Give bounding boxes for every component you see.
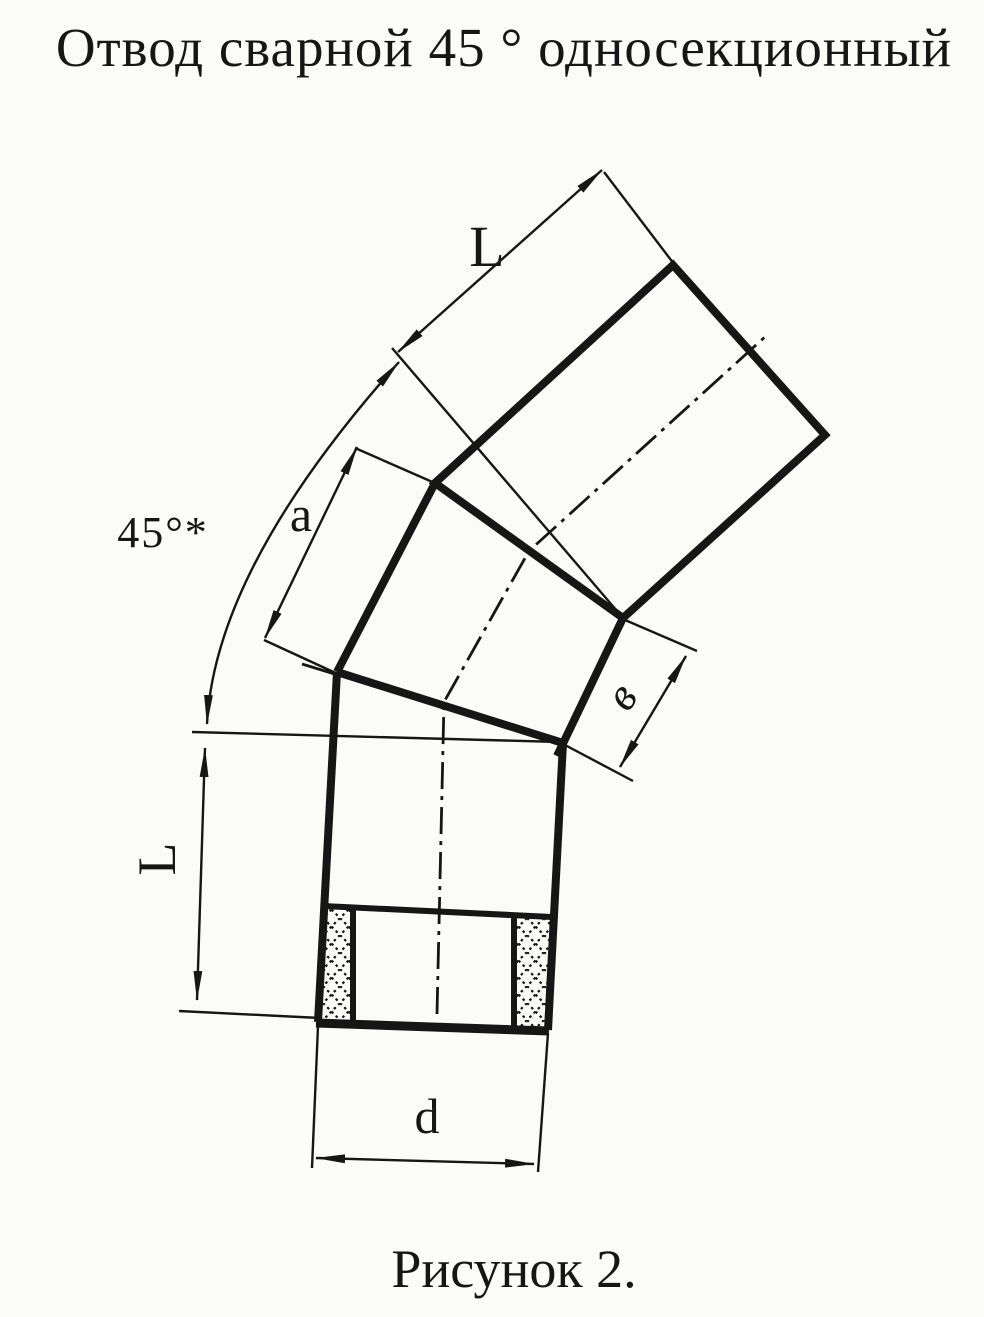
ext-line-L-left-top xyxy=(192,732,560,742)
ext-line-d-left xyxy=(312,1026,318,1168)
ext-line-L-top-near xyxy=(392,348,623,618)
bottom-pipe-right-edge xyxy=(548,743,563,1030)
left-wall-hatch xyxy=(319,907,353,1021)
label-d: d xyxy=(415,1088,440,1144)
elbow-diagram: L a 45°* в L d xyxy=(0,0,984,1317)
label-angle-45: 45°* xyxy=(117,508,209,557)
ext-line-L-top-far xyxy=(604,172,674,264)
socket-detail xyxy=(319,906,552,1029)
label-a: a xyxy=(290,486,312,542)
dimensions xyxy=(179,170,697,1172)
ext-line-v-top xyxy=(625,620,697,651)
pipe-outline xyxy=(302,265,825,1031)
ext-line-a-bottom xyxy=(264,640,340,675)
dim-line-a xyxy=(265,447,357,638)
ext-line-d-right xyxy=(538,1033,548,1172)
scanned-drawing-page: Отвод сварной 45 ° односекционный xyxy=(0,0,984,1317)
dimension-labels: L a 45°* в L d xyxy=(117,214,647,1144)
dim-line-d xyxy=(316,1158,534,1164)
socket-top-edge xyxy=(323,906,552,917)
label-v: в xyxy=(594,673,647,719)
middle-section-left-edge xyxy=(337,483,435,672)
right-wall-hatch xyxy=(514,915,551,1029)
label-L-left: L xyxy=(127,843,187,876)
lower-miter-joint xyxy=(337,672,563,743)
figure-caption: Рисунок 2. xyxy=(22,1238,984,1300)
label-L-top: L xyxy=(469,214,504,279)
top-pipe-section xyxy=(435,265,825,618)
angle-arc-45 xyxy=(207,362,399,724)
ext-line-a-top xyxy=(355,448,437,484)
dim-line-L-left xyxy=(197,748,205,1000)
ext-line-L-left-bottom xyxy=(179,1011,320,1018)
